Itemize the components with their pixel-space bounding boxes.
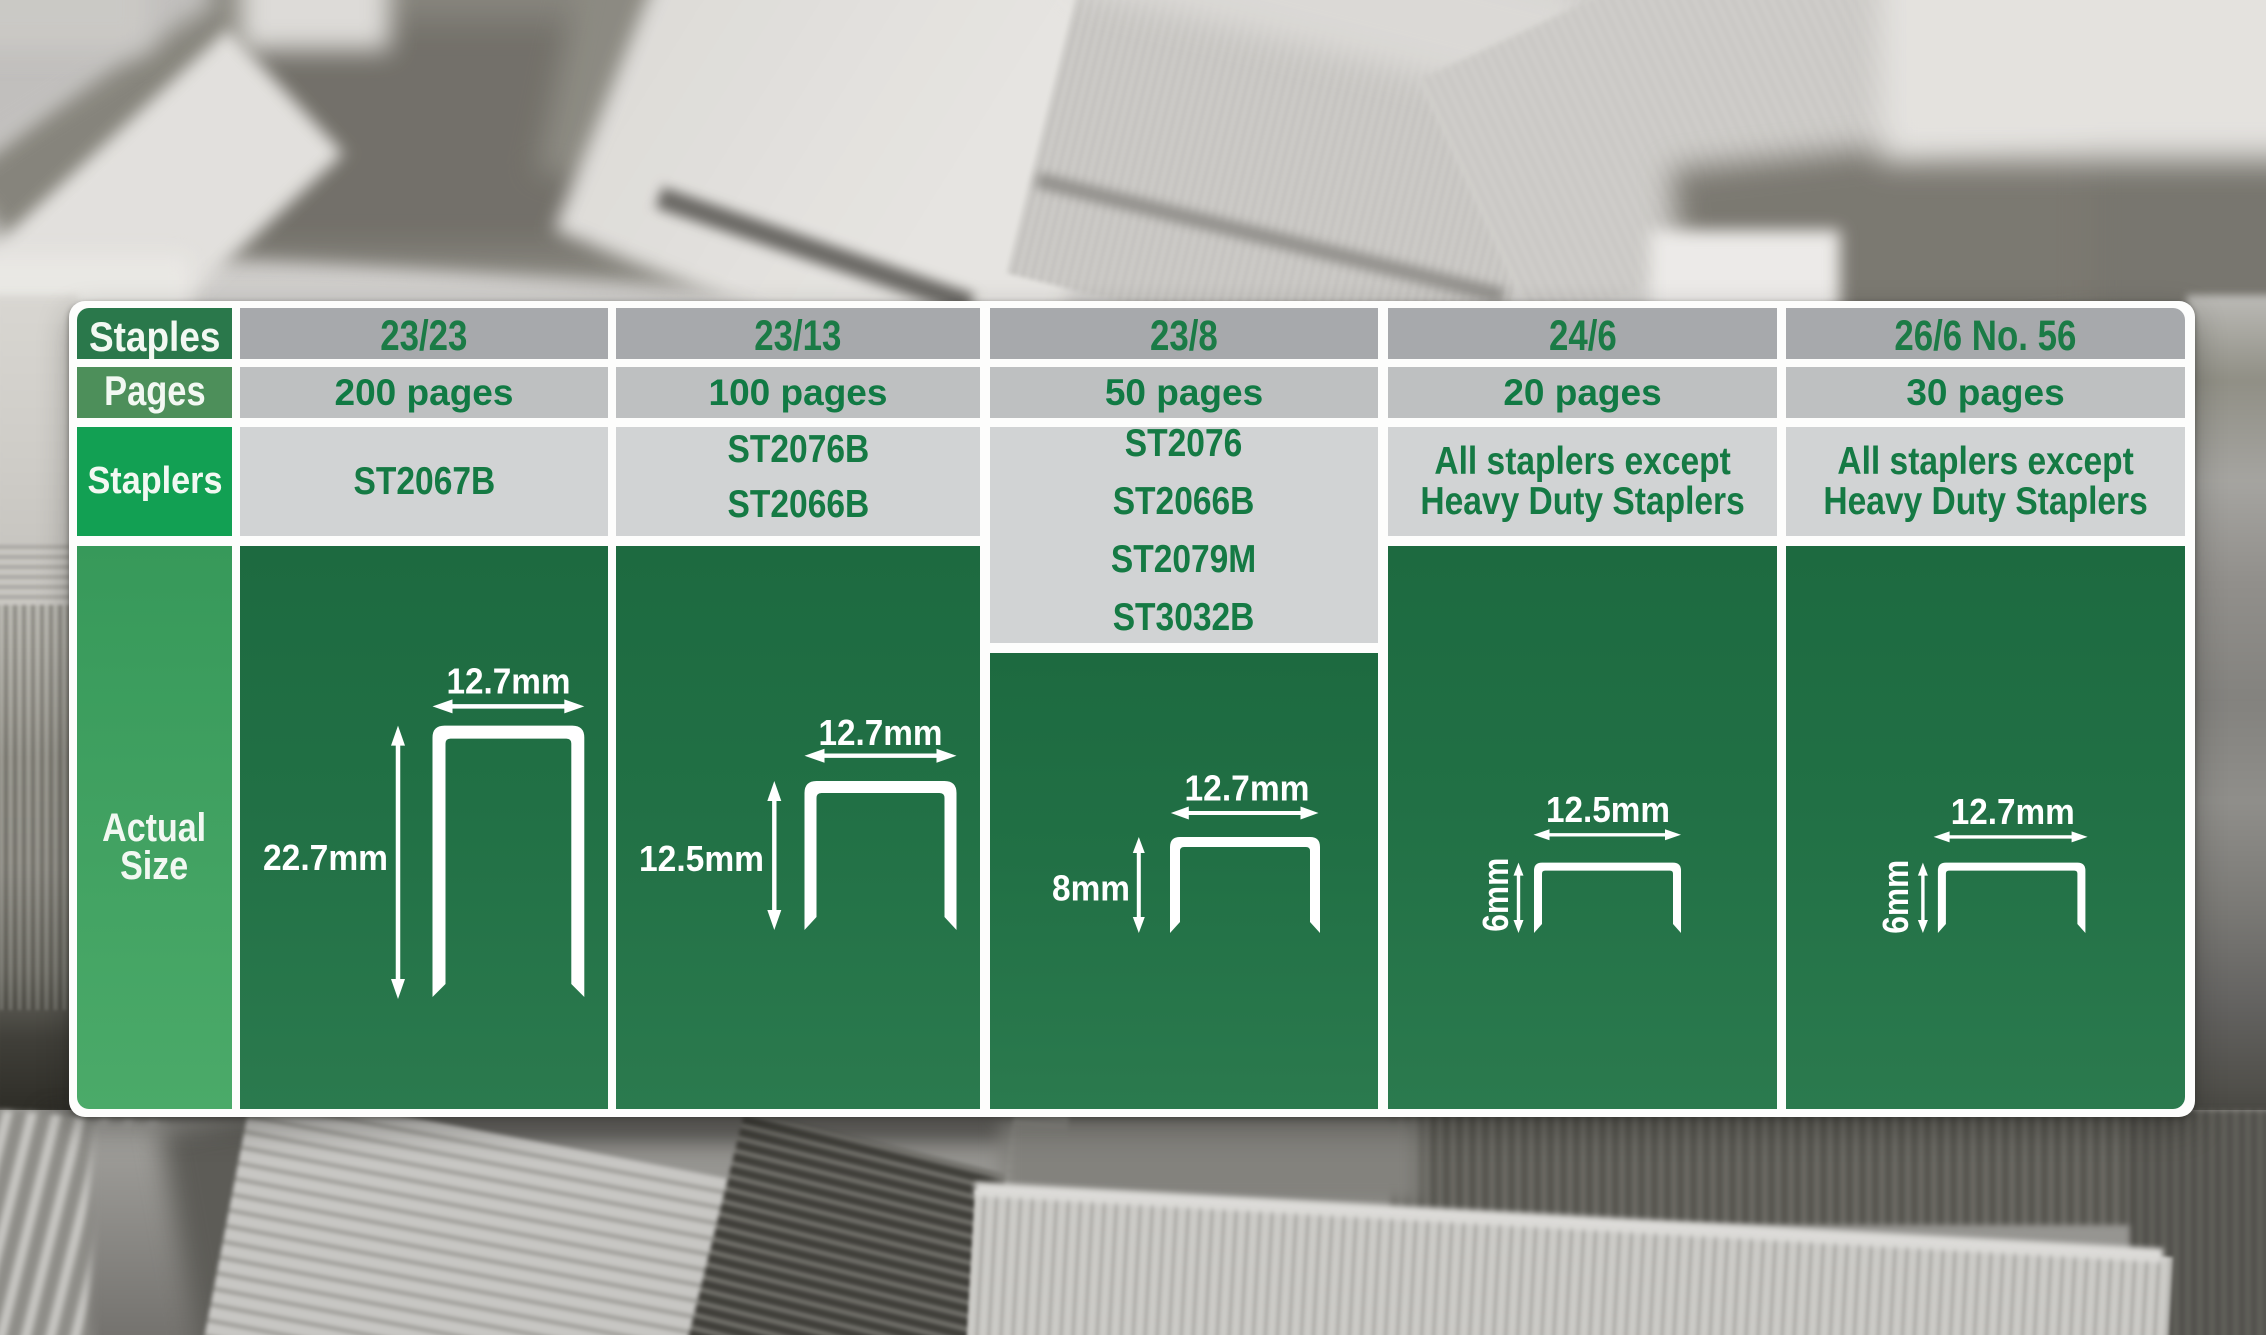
svg-text:12.5mm: 12.5mm	[639, 838, 764, 879]
svg-text:12.7mm: 12.7mm	[1185, 768, 1310, 809]
svg-text:6mm: 6mm	[1475, 858, 1516, 932]
svg-text:12.5mm: 12.5mm	[1546, 789, 1670, 830]
svg-text:8mm: 8mm	[1052, 868, 1130, 909]
svg-text:12.7mm: 12.7mm	[447, 661, 571, 702]
svg-text:12.7mm: 12.7mm	[819, 712, 943, 753]
svg-text:12.7mm: 12.7mm	[1951, 791, 2075, 832]
svg-text:6mm: 6mm	[1875, 860, 1916, 934]
svg-text:22.7mm: 22.7mm	[263, 837, 388, 878]
